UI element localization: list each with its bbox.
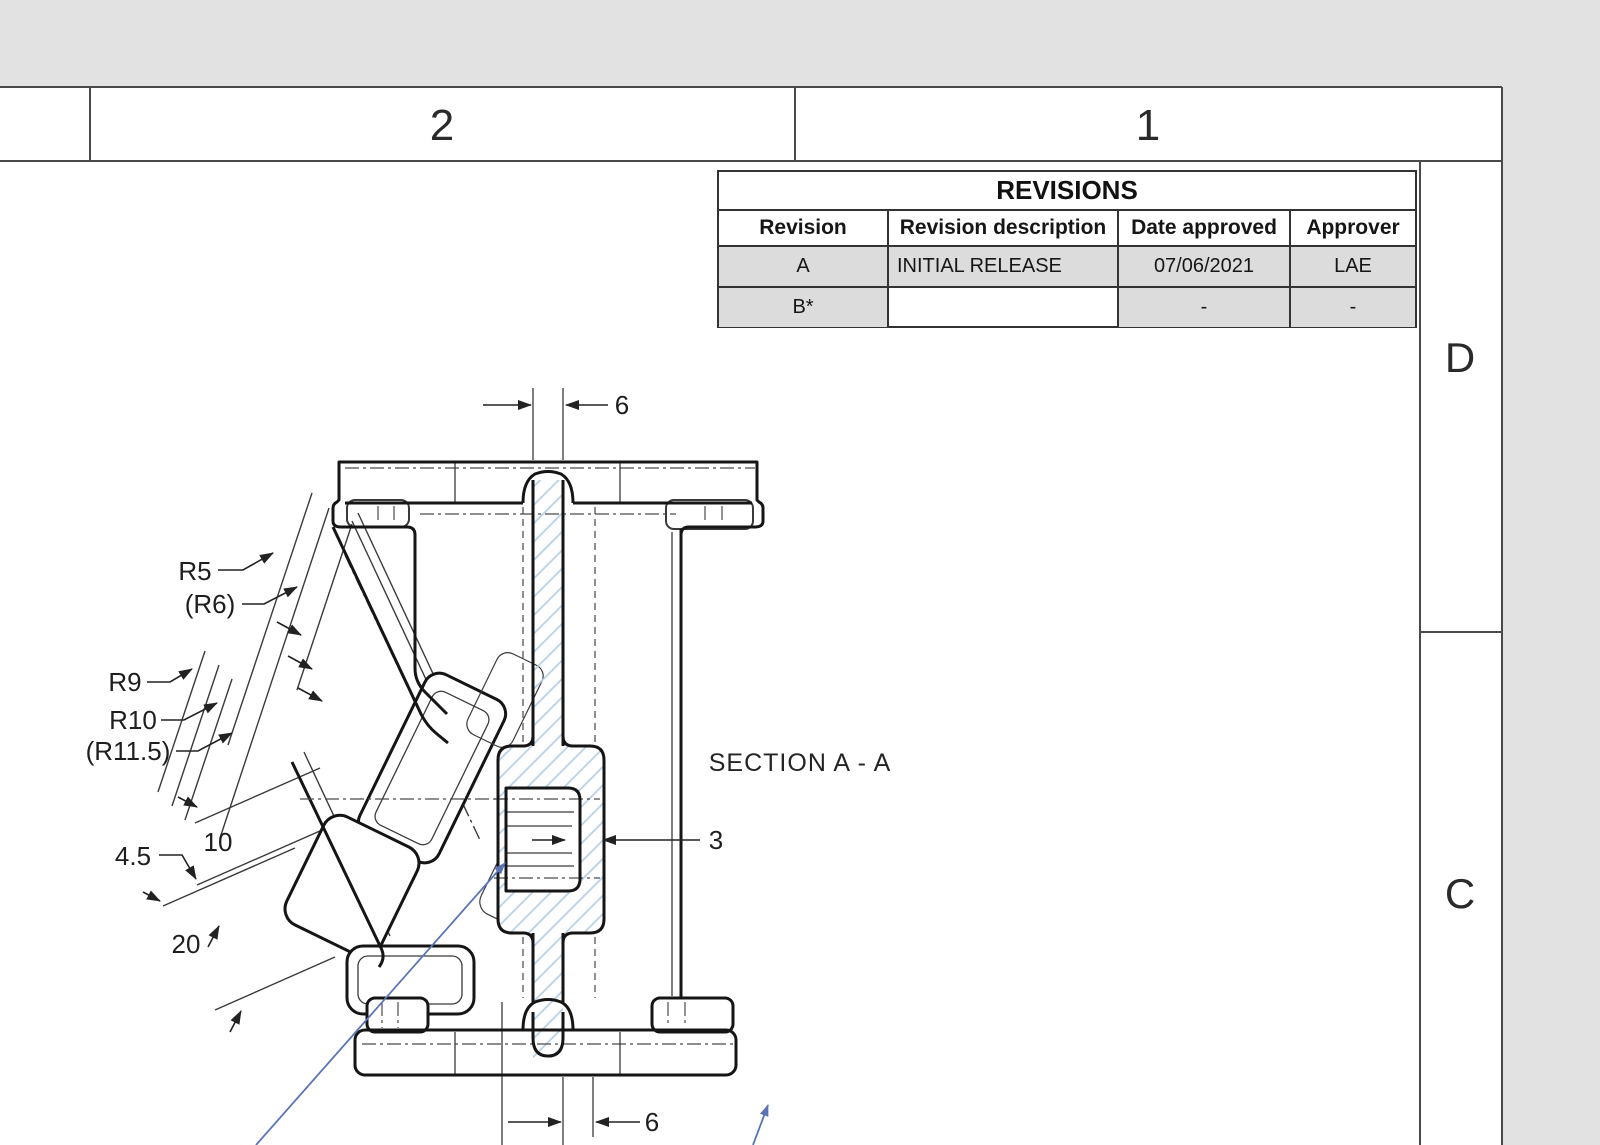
zone-column-1: 1 (1136, 101, 1160, 150)
header-date-approved: Date approved (1119, 211, 1291, 247)
outside-band-right (1502, 87, 1600, 1145)
radius-r10: R10 (109, 705, 157, 735)
header-approver: Approver (1291, 211, 1415, 247)
dim-twenty: 20 (172, 929, 201, 959)
zone-row-d: D (1445, 334, 1475, 381)
radius-r9: R9 (108, 667, 141, 697)
revision-row-b: B* - - (719, 288, 1415, 327)
dim-ten: 10 (204, 827, 233, 857)
revision-approver: - (1291, 288, 1415, 327)
zone-row-c: C (1445, 870, 1475, 917)
radius-r11-5: (R11.5) (86, 736, 171, 766)
revision-description: INITIAL RELEASE (889, 247, 1119, 288)
revision-description (889, 288, 1119, 327)
section-label: SECTION A - A (709, 749, 892, 777)
revisions-table-title: REVISIONS (719, 172, 1415, 211)
revisions-table: REVISIONS Revision Revision description … (717, 170, 1417, 328)
dim-wall-thickness: 3 (709, 825, 723, 855)
revision-id: B* (719, 288, 889, 327)
revision-date: - (1119, 288, 1291, 327)
revision-row-a: A INITIAL RELEASE 07/06/2021 LAE (719, 247, 1415, 288)
dim-bottom-web-width: 6 (645, 1107, 659, 1137)
dim-four-five: 4.5 (115, 841, 151, 871)
outside-band-top (0, 0, 1600, 87)
section-hatch (470, 465, 630, 1065)
zone-column-2: 2 (430, 101, 454, 150)
radius-r5: R5 (178, 556, 211, 586)
drawing-sheet-viewport: 6 6 3 R5 (R6) R9 R10 (R11.5) 10 4.5 20 S… (0, 0, 1600, 1145)
revision-id: A (719, 247, 889, 288)
dim-top-web-width: 6 (615, 390, 629, 420)
revision-date: 07/06/2021 (1119, 247, 1291, 288)
radius-r6: (R6) (185, 589, 236, 619)
revision-approver: LAE (1291, 247, 1415, 288)
revisions-table-header-row: Revision Revision description Date appro… (719, 211, 1415, 247)
header-revision: Revision (719, 211, 889, 247)
header-revision-description: Revision description (889, 211, 1119, 247)
